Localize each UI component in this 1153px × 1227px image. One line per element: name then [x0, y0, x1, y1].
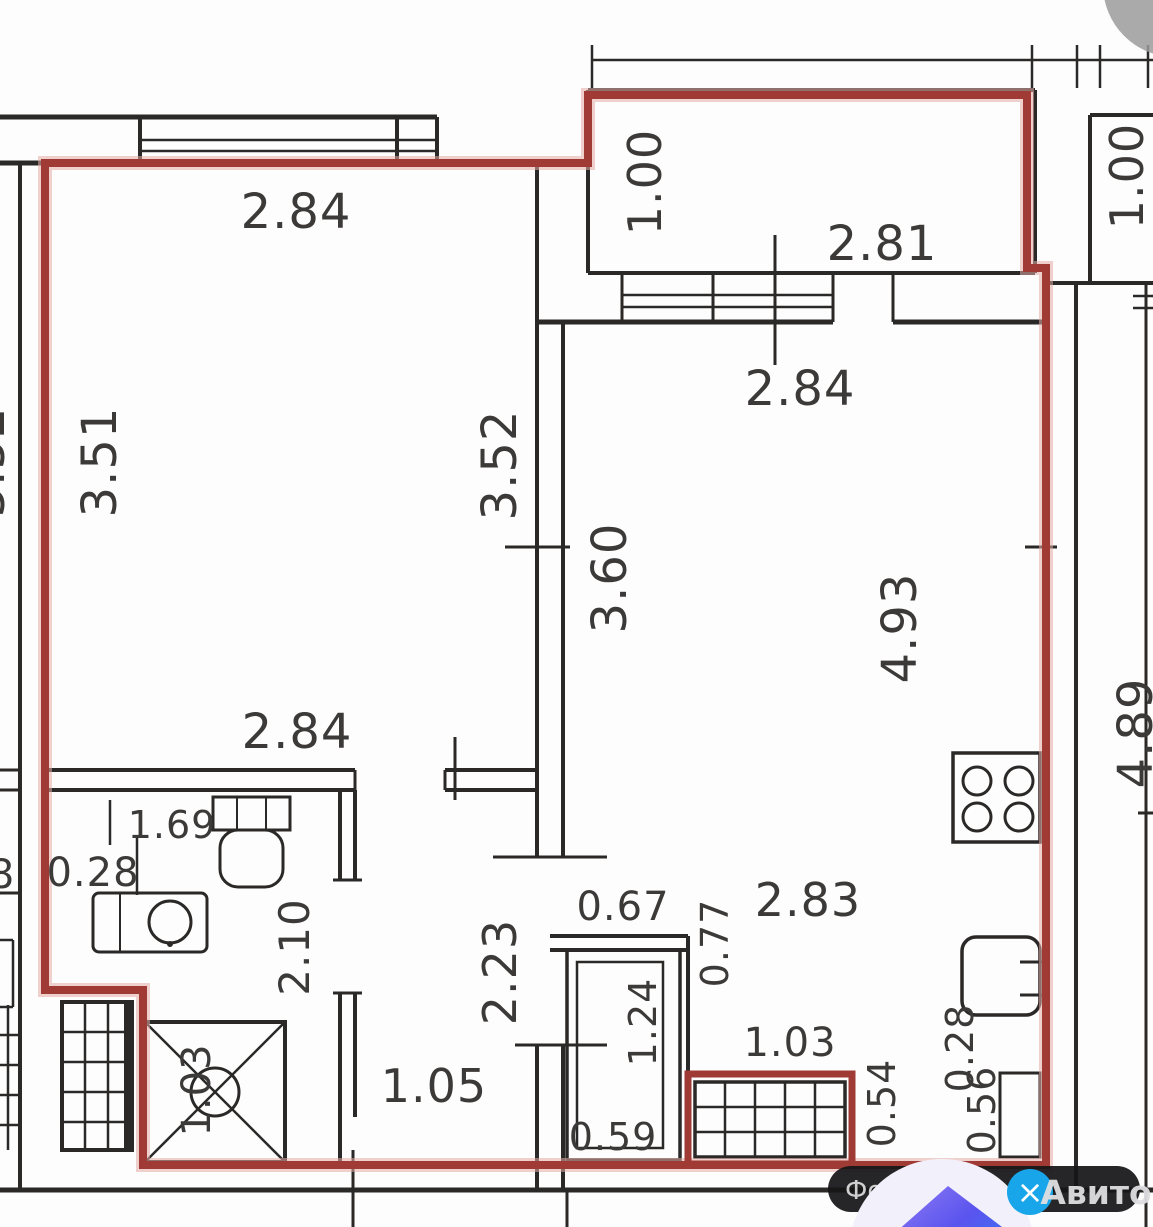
- dim-niche-a: 0.54: [860, 1059, 904, 1148]
- boundary-vent-notch: [688, 1074, 852, 1164]
- dim-room-width-bottom: 2.84: [242, 704, 353, 760]
- dim-hallway-width: 1.05: [381, 1059, 487, 1113]
- dim-balcony-depth: 1.00: [618, 129, 672, 235]
- dim-room-height-right: 3.52: [472, 410, 528, 521]
- dim-closet-width-bottom: 0.59: [569, 1115, 658, 1159]
- dim-balcony-width: 2.81: [827, 216, 938, 272]
- neighbor-balcony-structure: [1046, 115, 1153, 1190]
- dim-hallway-height: 2.23: [473, 919, 527, 1025]
- dim-closet-height: 1.24: [621, 978, 665, 1067]
- toilet: [213, 797, 290, 887]
- dim-shower: 1.03: [174, 1043, 220, 1136]
- dim-neighbor-balcony-depth: 1.00: [1100, 123, 1153, 229]
- dim-bathroom-offset: 0.28: [46, 850, 139, 896]
- stove: [953, 753, 1040, 842]
- dim-vent-width: 1.03: [743, 1020, 836, 1066]
- dim-room-width-top: 2.84: [241, 184, 352, 240]
- dim-edge-partial-left: 3.52: [0, 407, 16, 518]
- floor-plan-photo: 2.84 3.51 3.52 2.84 1.00 2.81 1.00 2.84 …: [0, 0, 1153, 1227]
- bathroom-sink: [93, 893, 207, 952]
- window-balcony-kitchen: [622, 273, 893, 322]
- dim-kitchen-wall-segment: 0.77: [693, 899, 737, 988]
- dim-room-height-left: 3.51: [72, 407, 128, 518]
- dim-niche-c: 0.56: [960, 1066, 1004, 1155]
- kitchen-sink: [962, 937, 1043, 1015]
- dim-bathroom-width: 1.69: [128, 803, 217, 847]
- corner-shade: [1103, 0, 1153, 57]
- dim-bathroom-height: 2.10: [270, 898, 319, 996]
- avito-watermark: Фо × Авито: [828, 1159, 1152, 1227]
- dim-kitchen-height-right: 4.89: [1108, 678, 1153, 789]
- kitchen-cabinet: [1000, 1073, 1040, 1157]
- dim-kitchen-height-center: 4.93: [872, 573, 928, 684]
- dim-closet-width-top: 0.67: [576, 884, 669, 930]
- vent-shaft-bathroom: [62, 1002, 132, 1150]
- vent-shaft-kitchen: [695, 1082, 845, 1157]
- dim-kitchen-width-top: 2.84: [745, 361, 856, 417]
- dim-edge-partial-digit: 8: [0, 852, 15, 898]
- dim-kitchen-height-left: 3.60: [582, 523, 638, 634]
- vent-shaft-neighbor: [0, 1005, 20, 1150]
- watermark-brand: Авито: [1040, 1173, 1151, 1212]
- dim-kitchen-width-mid: 2.83: [755, 873, 861, 927]
